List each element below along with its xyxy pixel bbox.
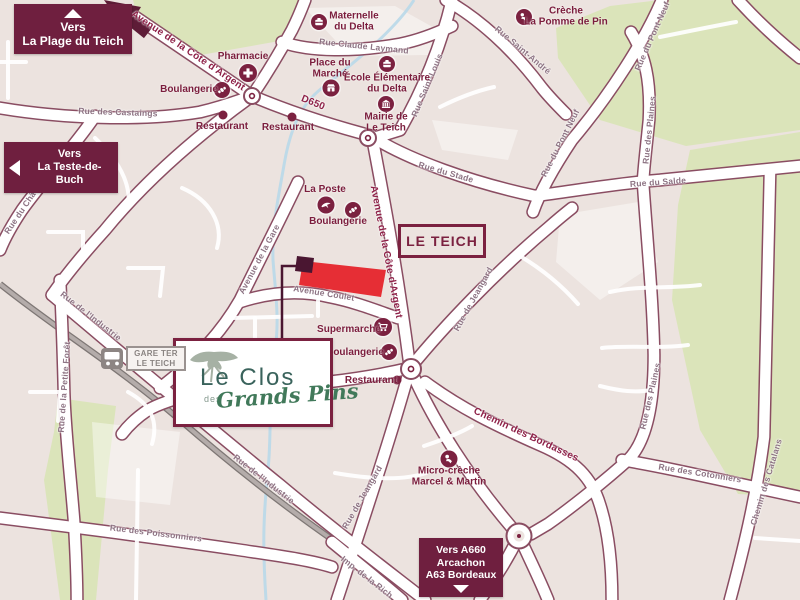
street-label: Rue du Stade <box>417 159 474 184</box>
street-label: Avenue Coulet <box>293 283 356 303</box>
map: Avenue de la Côte d'ArgentD650Rue des Ca… <box>0 0 800 600</box>
station-line: LE TEICH <box>128 359 184 369</box>
town-label: LE TEICH <box>398 224 486 258</box>
street-label: Rue de la Petite Forêt <box>56 341 72 433</box>
pharmacy-icon <box>239 64 257 82</box>
school-icon <box>379 56 395 72</box>
street-label: Rue Claude Laymand <box>319 36 410 55</box>
badge-line: Arcachon <box>421 557 501 570</box>
poi-label-line: Restaurant <box>262 123 314 134</box>
poi-label-restaurant-ouest: Restaurant <box>196 122 248 133</box>
poi-label-line: Boulangerie <box>309 217 367 228</box>
badge-a660-bordeaux: Vers A660 Arcachon A63 Bordeaux <box>419 538 503 597</box>
poi-label-line: Place du <box>309 59 350 70</box>
school-icon <box>311 14 327 30</box>
street-label: Rue de l'Industrie <box>59 289 124 343</box>
poi-label-line: du Delta <box>344 84 430 95</box>
street-label: Rue de Jeangard <box>340 464 384 531</box>
poi-label-line: Marcel & Martin <box>412 477 486 488</box>
street-label: Rue du Pont Neuf <box>632 0 671 72</box>
poi-label-line: La Poste <box>304 185 346 196</box>
poi-label-line: Boulangerie <box>326 348 384 359</box>
badge-la-teste-de-buch: Vers La Teste-de-Buch <box>4 142 118 193</box>
poi-label-la-poste: La Poste <box>304 185 346 196</box>
street-label: Rue du Pont Neuf <box>539 108 582 179</box>
badge-line: La Plage du Teich <box>14 35 132 49</box>
poi-label-boulangerie-centre: Boulangerie <box>309 217 367 228</box>
poi-label-pharmacie: Pharmacie <box>218 52 269 63</box>
poi-label-line: École Élémentaire <box>344 74 430 85</box>
poi-label-line: du Delta <box>329 22 378 33</box>
street-label: Rue des Poissonniers <box>109 522 202 543</box>
badge-line: Vers <box>14 21 132 35</box>
poi-label-restaurant-est: Restaurant <box>262 123 314 134</box>
poi-label-ecole-delta: École Élémentairedu Delta <box>344 74 430 95</box>
station-line: GARE TER <box>128 349 184 359</box>
labels-layer: Avenue de la Côte d'ArgentD650Rue des Ca… <box>0 0 800 600</box>
hall-icon <box>378 96 394 112</box>
street-label: Rue des Plaines <box>640 96 657 165</box>
poi-label-line: Mairie de <box>364 113 407 124</box>
station-label: GARE TER LE TEICH <box>126 346 186 371</box>
street-label: Rue du Salde <box>630 175 687 189</box>
poi-label-creche-pomme-de-pin: CrècheLa Pomme de Pin <box>524 7 607 28</box>
market-icon <box>323 80 340 97</box>
badge-line: Vers A660 <box>421 544 501 557</box>
street-label: Rue des Castaings <box>78 106 158 119</box>
badge-line: Vers <box>26 148 113 161</box>
street-label: D650 <box>299 93 326 112</box>
badge-line: A63 Bordeaux <box>421 569 501 582</box>
street-label: Rue Saint-André <box>493 24 553 76</box>
poi-label-supermarche: Supermarché <box>317 325 381 336</box>
badge-plage-du-teich: Vers La Plage du Teich <box>14 4 132 54</box>
poi-label-maternelle-delta: Maternelledu Delta <box>329 12 378 33</box>
poi-label-micro-creche: Micro-crècheMarcel & Martin <box>412 467 486 488</box>
badge-line: La Teste-de-Buch <box>26 161 113 187</box>
arrow-up-icon <box>64 9 82 18</box>
poi-label-mairie: Mairie deLe Teich <box>364 113 407 134</box>
poi-label-line: Le Teich <box>364 123 407 134</box>
street-label: Chemin des Bordasses <box>472 406 581 464</box>
poi-label-line: Micro-crèche <box>412 467 486 478</box>
poi-label-line: La Pomme de Pin <box>524 17 607 28</box>
poi-label-line: Pharmacie <box>218 52 269 63</box>
poi-label-line: Supermarché <box>317 325 381 336</box>
poi-label-line: Restaurant <box>196 122 248 133</box>
poi-dot-icon <box>288 113 297 122</box>
poi-label-line: Crèche <box>524 7 607 18</box>
bird-icon <box>318 197 335 214</box>
street-label: Chemin des Catalans <box>748 438 784 527</box>
logo-le-clos-des-grands-pins: Le Clos des Grands Pins <box>173 338 333 427</box>
arrow-down-icon <box>453 585 469 593</box>
street-label: Avenue de la Gare <box>236 223 281 296</box>
street-label: Rue des Cotonniers <box>658 461 742 484</box>
street-label: Rue des Plaines <box>637 362 662 431</box>
arrow-left-icon <box>9 160 20 176</box>
poi-label-boulangerie-sud: Boulangerie <box>326 348 384 359</box>
poi-label-line: Maternelle <box>329 12 378 23</box>
poi-dot-icon <box>219 111 228 120</box>
poi-label-boulangerie-nord: Boulangerie <box>160 85 218 96</box>
street-label: Imp. de la Rich <box>339 554 395 600</box>
street-label: Rue de Jeangard <box>451 265 494 332</box>
street-label: Rue de l'Industrie <box>232 452 297 506</box>
poi-label-line: Boulangerie <box>160 85 218 96</box>
